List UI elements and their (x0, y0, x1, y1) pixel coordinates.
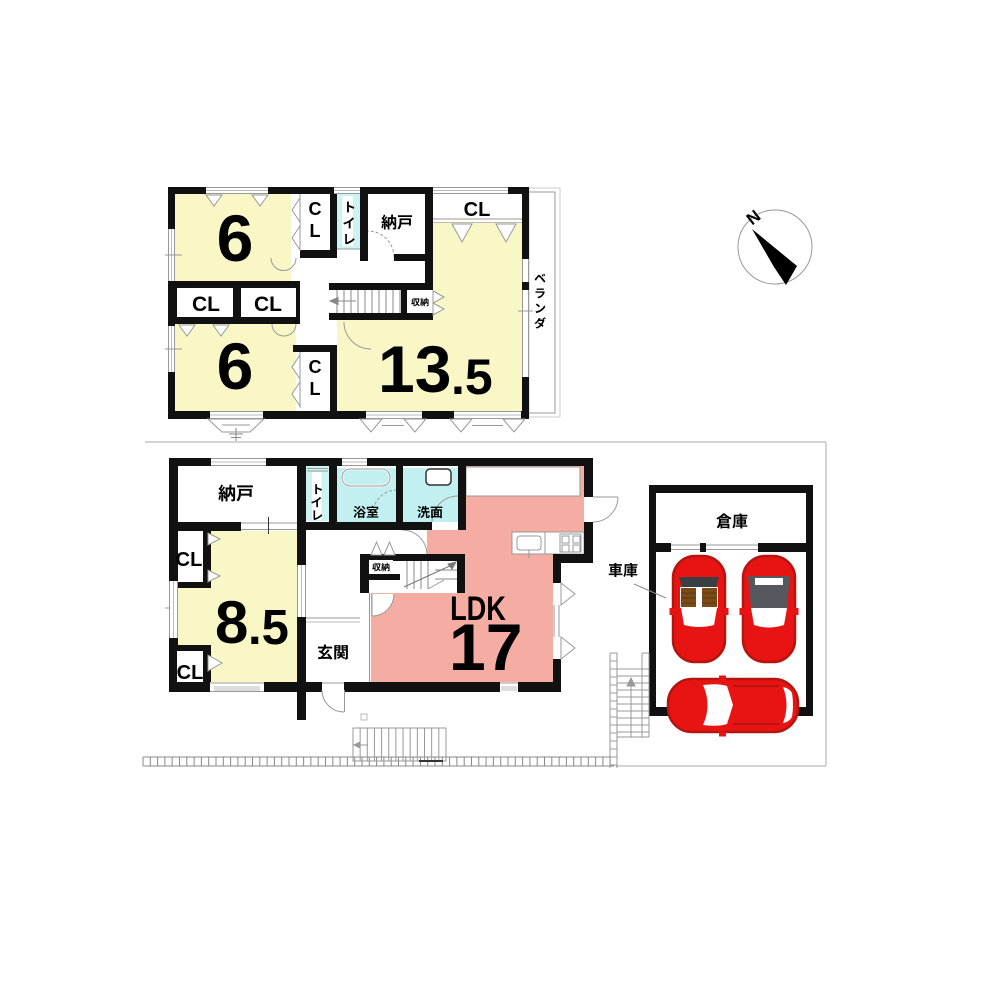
svg-text:13: 13 (378, 332, 451, 406)
svg-text:CL: CL (176, 549, 203, 571)
svg-text:C: C (309, 357, 322, 377)
svg-text:6: 6 (217, 201, 254, 275)
svg-text:CL: CL (177, 662, 204, 684)
svg-text:L: L (310, 379, 321, 399)
svg-text:6: 6 (217, 329, 254, 403)
svg-text:.5: .5 (451, 349, 493, 405)
svg-text:17: 17 (449, 610, 522, 684)
svg-text:CL: CL (464, 199, 491, 221)
svg-text:CL: CL (192, 293, 220, 316)
svg-text:CL: CL (254, 293, 282, 316)
svg-text:C: C (309, 199, 322, 219)
svg-text:L: L (310, 221, 321, 241)
svg-text:8: 8 (215, 589, 248, 656)
svg-text:.5: .5 (248, 601, 289, 655)
